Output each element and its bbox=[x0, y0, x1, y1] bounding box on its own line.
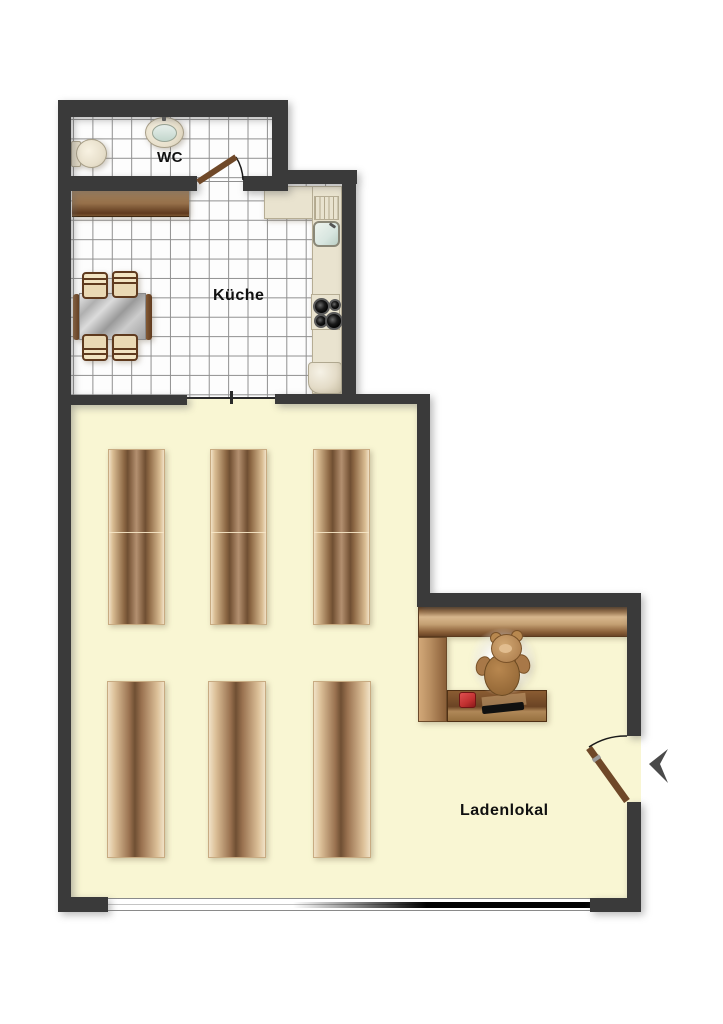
shop-label: Ladenlokal bbox=[460, 803, 549, 819]
wc-label: WC bbox=[157, 150, 183, 165]
floor-plan-page: WC Küche Ladenlokal bbox=[0, 0, 723, 1024]
kitchen-label: Küche bbox=[213, 288, 264, 304]
labels-layer: WC Küche Ladenlokal bbox=[0, 0, 723, 1024]
